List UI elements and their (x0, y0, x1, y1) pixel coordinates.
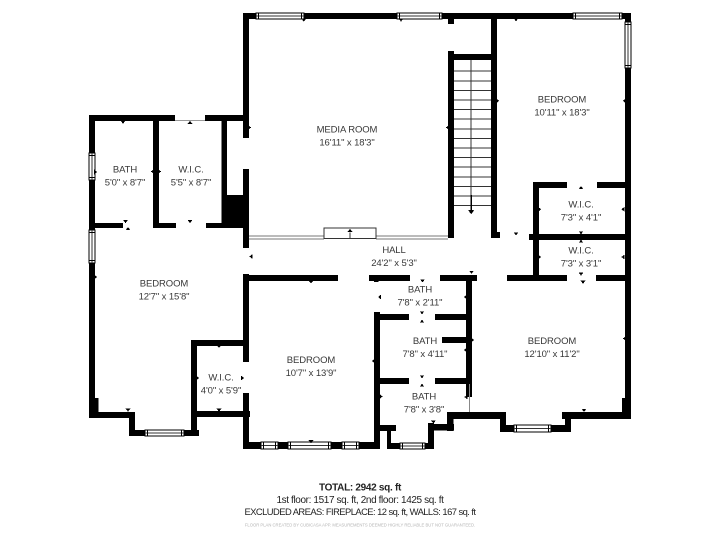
svg-text:W.I.C.: W.I.C. (208, 373, 233, 384)
svg-text:7'3" x 3'1": 7'3" x 3'1" (561, 258, 601, 269)
svg-text:5'5" x 8'7": 5'5" x 8'7" (171, 177, 211, 188)
svg-text:W.I.C.: W.I.C. (568, 246, 593, 257)
svg-text:4'0" x 5'9": 4'0" x 5'9" (201, 385, 241, 396)
svg-text:EXCLUDED AREAS: FIREPLACE: 12: EXCLUDED AREAS: FIREPLACE: 12 sq. ft, WA… (245, 506, 477, 517)
svg-text:7'3" x 4'1": 7'3" x 4'1" (561, 212, 601, 223)
svg-text:12'10" x 11'2": 12'10" x 11'2" (524, 349, 579, 360)
svg-text:7'8" x 4'11": 7'8" x 4'11" (403, 349, 448, 360)
svg-text:BATH: BATH (408, 285, 432, 296)
svg-text:BEDROOM: BEDROOM (528, 336, 577, 347)
svg-text:BATH: BATH (113, 165, 137, 176)
svg-text:1st floor: 1517 sq. ft, 2nd fl: 1st floor: 1517 sq. ft, 2nd floor: 1425 … (276, 495, 444, 506)
svg-text:12'7" x 15'8": 12'7" x 15'8" (139, 291, 190, 302)
svg-text:MEDIA ROOM: MEDIA ROOM (317, 125, 378, 136)
svg-text:HALL: HALL (382, 245, 405, 256)
svg-text:BEDROOM: BEDROOM (538, 95, 587, 106)
svg-text:BEDROOM: BEDROOM (287, 355, 336, 366)
svg-text:10'11" x 18'3": 10'11" x 18'3" (534, 107, 589, 118)
svg-text:TOTAL: 2942 sq. ft: TOTAL: 2942 sq. ft (319, 483, 402, 494)
svg-text:BEDROOM: BEDROOM (140, 279, 189, 290)
svg-text:16'11" x 18'3": 16'11" x 18'3" (319, 137, 374, 148)
svg-text:BATH: BATH (412, 392, 436, 403)
svg-text:7'8" x 3'8": 7'8" x 3'8" (404, 404, 444, 415)
svg-text:FLOOR PLAN CREATED BY CUBICASA: FLOOR PLAN CREATED BY CUBICASA APP. MEAS… (245, 523, 475, 528)
svg-text:W.I.C.: W.I.C. (568, 200, 593, 211)
svg-text:BATH: BATH (413, 336, 437, 347)
svg-text:W.I.C.: W.I.C. (178, 165, 203, 176)
svg-text:10'7" x 13'9": 10'7" x 13'9" (286, 368, 337, 379)
svg-text:7'8" x 2'11": 7'8" x 2'11" (398, 297, 443, 308)
svg-text:24'2" x 5'3": 24'2" x 5'3" (371, 258, 417, 269)
svg-text:5'0" x 8'7": 5'0" x 8'7" (105, 177, 145, 188)
